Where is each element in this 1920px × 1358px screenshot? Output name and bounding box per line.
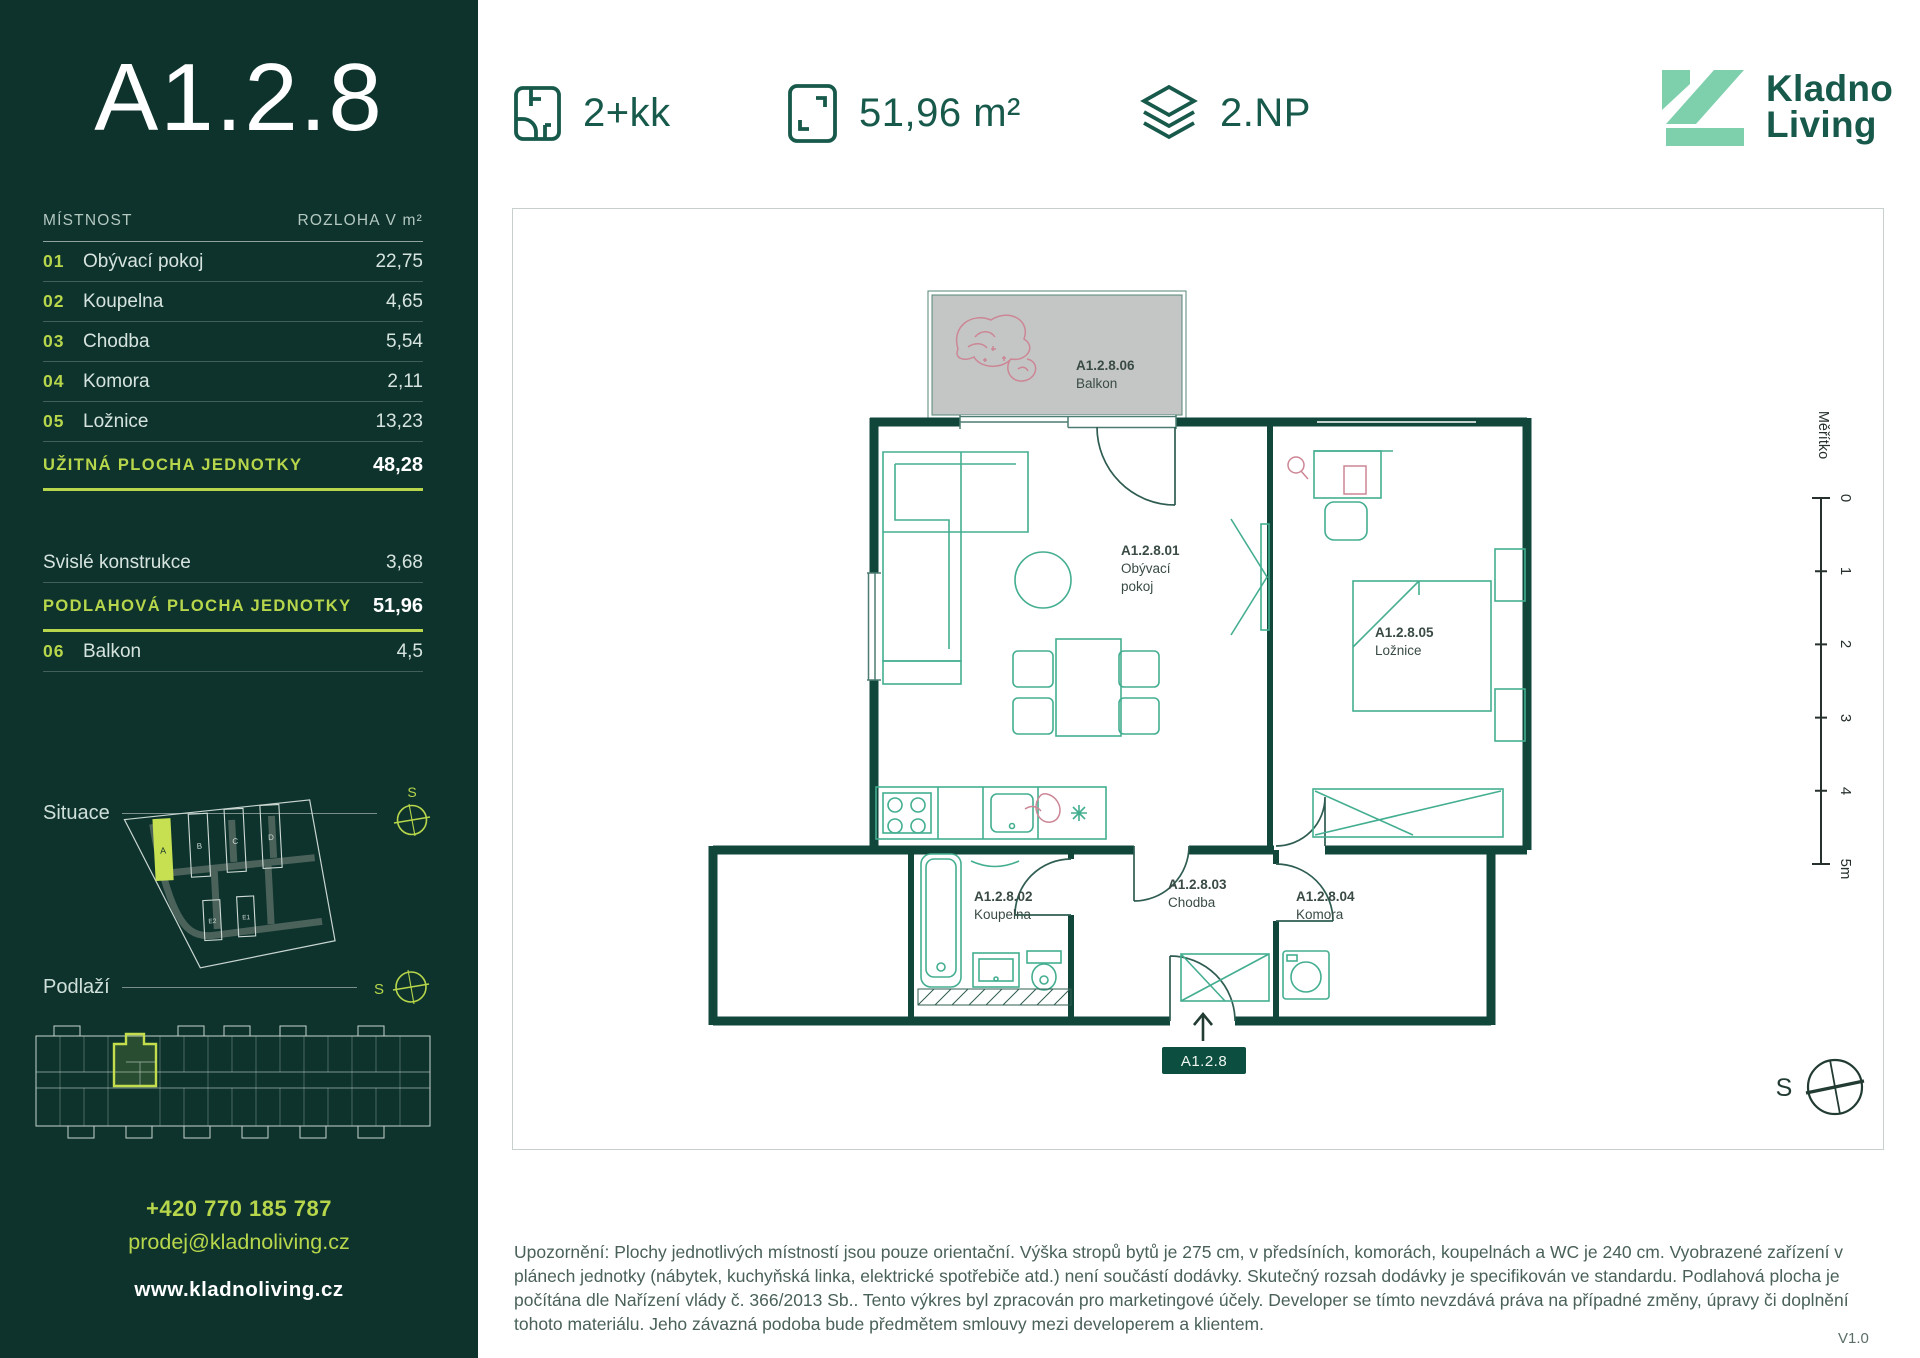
table-row: 01 Obývací pokoj 22,75 — [43, 242, 423, 282]
bathroom-hatch — [918, 989, 1071, 1005]
building-b-label: B — [197, 842, 203, 851]
floor-value: 2.NP — [1220, 91, 1311, 136]
floorplan-icon — [514, 86, 561, 141]
compass-icon: S — [389, 784, 435, 842]
bathroom-name: Koupelna — [974, 907, 1032, 922]
usable-area-label: UŽITNÁ PLOCHA JEDNOTKY — [43, 456, 373, 475]
room-name: Chodba — [83, 331, 386, 353]
building-e2-label: E2 — [208, 918, 217, 925]
scale-tick-2: 2 — [1837, 640, 1854, 648]
table-row: 03 Chodba 5,54 — [43, 322, 423, 362]
version-label: V1.0 — [1838, 1330, 1869, 1347]
floor-level-icon — [1140, 85, 1198, 141]
floor-area-value: 51,96 — [373, 595, 423, 618]
room-name: Koupelna — [83, 291, 386, 313]
scale-title: Měřítko — [1815, 411, 1831, 459]
balcony-row: 06 Balkon 4,5 — [43, 632, 423, 672]
room-area: 13,23 — [375, 411, 423, 433]
table-row: 04 Komora 2,11 — [43, 362, 423, 402]
interior-walls — [911, 420, 1276, 1025]
bedroom-id: A1.2.8.05 — [1375, 625, 1434, 640]
room-number: 01 — [43, 251, 83, 272]
balcony-name: Balkon — [1076, 376, 1117, 391]
website-link[interactable]: www.kladnoliving.cz — [0, 1278, 478, 1302]
bathroom-fixtures — [921, 854, 1061, 990]
table-spacer — [43, 491, 423, 543]
col-area-label: ROZLOHA V m² — [298, 212, 424, 230]
room-area: 4,65 — [386, 291, 423, 313]
building-c-label: C — [232, 837, 238, 846]
col-room-label: MÍSTNOST — [43, 212, 133, 230]
compass-icon: S — [1776, 1060, 1864, 1114]
compass-letter: S — [407, 784, 416, 800]
room-area: 2,11 — [387, 371, 423, 393]
layout-value: 2+kk — [583, 91, 671, 136]
storage-name: Komora — [1296, 907, 1344, 922]
living-name-2: pokoj — [1121, 579, 1153, 594]
phone-link[interactable]: +420 770 185 787 — [0, 1196, 478, 1222]
unit-walls — [713, 418, 1527, 1025]
brand-logo: Kladno Living — [1656, 64, 1893, 150]
hall-id: A1.2.8.03 — [1168, 877, 1227, 892]
bedroom-name: Ložnice — [1375, 643, 1422, 658]
scale-bar: Měřítko 0 1 2 3 4 5m — [1812, 411, 1854, 880]
living-name-1: Obývací — [1121, 561, 1171, 576]
scale-tick-0: 0 — [1837, 494, 1854, 502]
entrance-marker: A1.2.8 — [1162, 1014, 1246, 1074]
scale-tick-3: 3 — [1837, 714, 1854, 722]
brand-line1: Kladno — [1766, 71, 1893, 107]
room-name: Ložnice — [83, 411, 375, 433]
storage-id: A1.2.8.04 — [1296, 889, 1355, 904]
room-area: 5,54 — [386, 331, 423, 353]
vertical-structures-label: Svislé konstrukce — [43, 552, 386, 574]
spec-floor: 2.NP — [1140, 72, 1311, 154]
area-value: 51,96 m² — [859, 91, 1021, 136]
scale-tick-5: 5m — [1837, 859, 1854, 880]
room-number: 02 — [43, 291, 83, 312]
hall-name: Chodba — [1168, 895, 1216, 910]
room-name: Obývací pokoj — [83, 251, 375, 273]
usable-area-value: 48,28 — [373, 454, 423, 477]
room-name: Komora — [83, 371, 387, 393]
doors — [1015, 427, 1333, 1021]
room-number: 04 — [43, 371, 83, 392]
room-name: Balkon — [83, 641, 397, 663]
email-link[interactable]: prodej@kladnoliving.cz — [0, 1230, 478, 1255]
podlazi-section-header: Podlaží S — [43, 966, 435, 1008]
room-number: 05 — [43, 411, 83, 432]
floorplan-frame: A1.2.8.06 Balkon — [512, 208, 1884, 1150]
floorplan-drawing: A1.2.8.06 Balkon — [513, 209, 1883, 1149]
unit-badge-label: A1.2.8 — [1181, 1053, 1227, 1070]
scale-tick-4: 4 — [1837, 787, 1854, 795]
site-plan: A B C D E2 E1 — [116, 798, 351, 973]
room-number: 03 — [43, 331, 83, 352]
room-table: MÍSTNOST ROZLOHA V m² 01 Obývací pokoj 2… — [43, 212, 423, 672]
storage-furniture — [1181, 951, 1329, 1001]
table-row: 02 Koupelna 4,65 — [43, 282, 423, 322]
building-d-label: D — [268, 833, 274, 842]
unit-id-title: A1.2.8 — [0, 50, 478, 146]
vertical-structures-value: 3,68 — [386, 552, 423, 574]
balcony-area: A1.2.8.06 Balkon — [928, 291, 1186, 419]
situace-label: Situace — [43, 802, 110, 825]
brand-line2: Living — [1766, 107, 1893, 143]
room-area: 22,75 — [375, 251, 423, 273]
spec-layout: 2+kk — [514, 72, 671, 154]
compass-letter: S — [1776, 1074, 1793, 1102]
bathroom-id: A1.2.8.02 — [974, 889, 1033, 904]
spec-area: 51,96 m² — [788, 72, 1021, 154]
living-room-furniture — [876, 452, 1269, 839]
building-e1-label: E1 — [242, 914, 251, 921]
usable-area-row: UŽITNÁ PLOCHA JEDNOTKY 48,28 — [43, 442, 423, 491]
room-area: 4,5 — [397, 641, 423, 663]
divider — [122, 987, 357, 988]
room-table-header: MÍSTNOST ROZLOHA V m² — [43, 212, 423, 242]
brand-name: Kladno Living — [1766, 71, 1893, 144]
floor-area-row: PODLAHOVÁ PLOCHA JEDNOTKY 51,96 — [43, 583, 423, 632]
building-floor-plan — [28, 1006, 448, 1154]
podlazi-label: Podlaží — [43, 976, 110, 999]
highlighted-unit — [114, 1034, 156, 1086]
kladno-living-mark-icon — [1656, 64, 1748, 150]
building-a-label: A — [160, 845, 167, 855]
compass-letter: S — [374, 981, 384, 998]
living-id: A1.2.8.01 — [1121, 543, 1180, 558]
sidebar: A1.2.8 MÍSTNOST ROZLOHA V m² 01 Obývací … — [0, 0, 478, 1358]
floor-area-label: PODLAHOVÁ PLOCHA JEDNOTKY — [43, 597, 373, 616]
area-icon — [788, 84, 837, 143]
compass-icon: S — [369, 966, 435, 1008]
balcony-id: A1.2.8.06 — [1076, 358, 1135, 373]
disclaimer-text: Upozornění: Plochy jednotlivých místnost… — [514, 1240, 1856, 1337]
floorplan-sheet: A1.2.8 MÍSTNOST ROZLOHA V m² 01 Obývací … — [0, 0, 1920, 1358]
table-row: 05 Ložnice 13,23 — [43, 402, 423, 442]
room-number: 06 — [43, 641, 83, 662]
scale-tick-1: 1 — [1837, 567, 1854, 575]
room-labels: A1.2.8.01 Obývací pokoj A1.2.8.05 Ložnic… — [974, 543, 1434, 922]
vertical-structures-row: Svislé konstrukce 3,68 — [43, 543, 423, 583]
